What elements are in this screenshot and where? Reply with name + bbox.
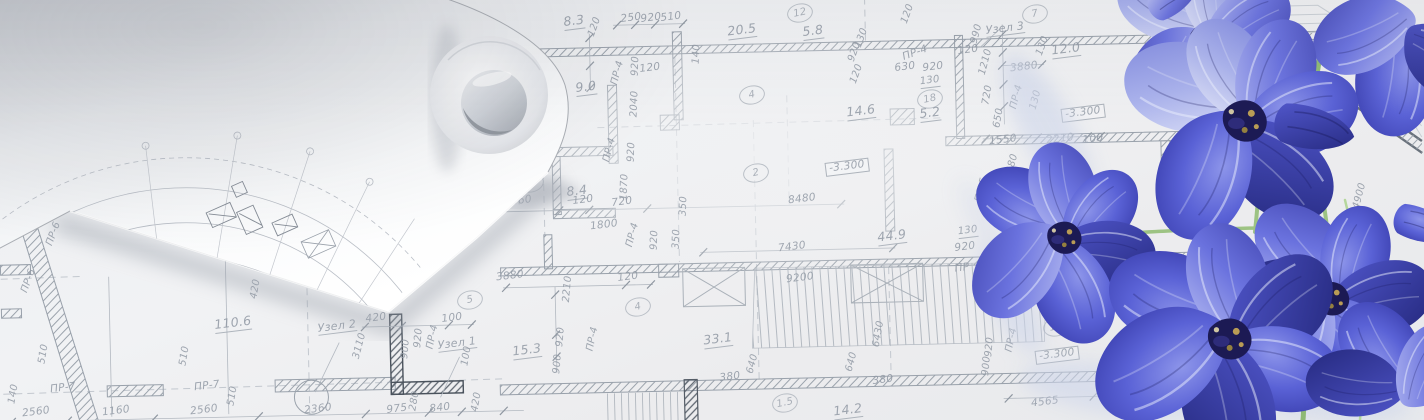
rolled-blueprint [0,0,591,420]
flower-bud-right [1389,200,1424,253]
foreground-overlay [0,0,1424,420]
blueprint-banner: 1276418217354131.58.320.55.89.012.014.65… [0,0,1424,420]
